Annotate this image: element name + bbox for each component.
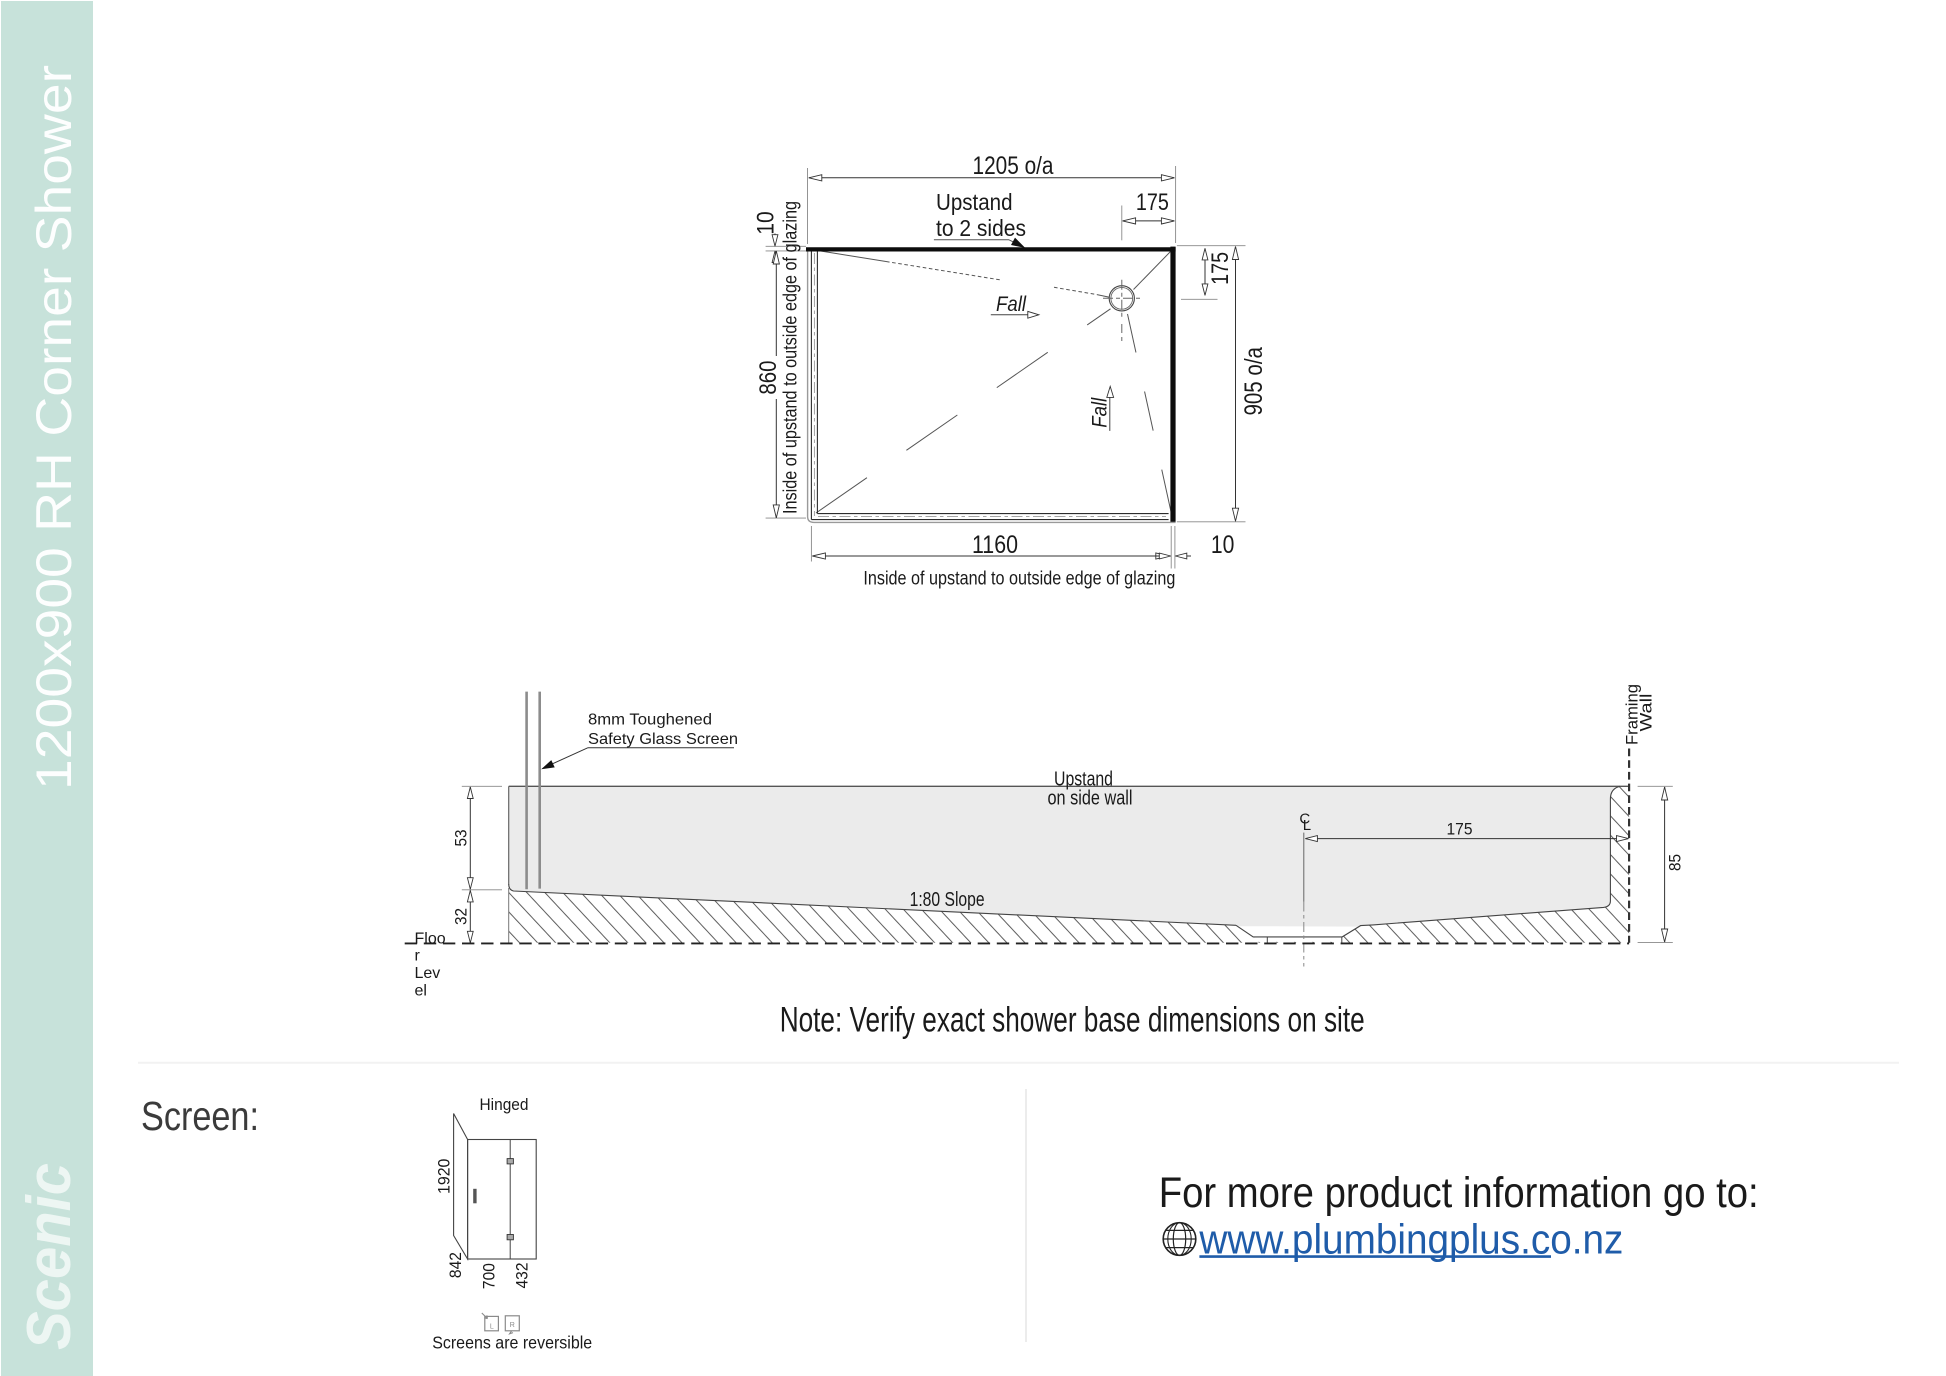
svg-text:Note: Verify exact shower base: Note: Verify exact shower base dimension… [780,1001,1365,1040]
svg-text:Wall: Wall [1638,694,1656,732]
svg-text:to 2 sides: to 2 sides [936,215,1026,241]
svg-text:Screens are reversible: Screens are reversible [432,1333,592,1353]
svg-text:r: r [415,948,421,965]
svg-text:175: 175 [1136,189,1169,216]
svg-text:Fall: Fall [996,293,1027,316]
svg-text:85: 85 [1667,854,1685,871]
svg-text:1:80 Slope: 1:80 Slope [910,889,985,911]
svg-text:Screen:: Screen: [141,1093,259,1139]
svg-text:842: 842 [447,1252,465,1278]
svg-text:Scenic: Scenic [15,1163,84,1350]
svg-text:Fall: Fall [1089,397,1112,428]
svg-text:175: 175 [1207,252,1234,285]
svg-text:905 o/a: 905 o/a [1240,347,1268,416]
svg-text:700: 700 [480,1263,498,1289]
svg-text:el: el [415,983,427,1000]
svg-text:Inside of upstand to outside e: Inside of upstand to outside edge of gla… [863,569,1175,590]
svg-text:32: 32 [453,908,471,925]
svg-text:1200x900 RH Corner Shower: 1200x900 RH Corner Shower [26,65,82,790]
svg-text:1920: 1920 [436,1159,454,1194]
svg-text:10: 10 [753,211,780,235]
svg-text:10: 10 [1211,531,1235,559]
svg-text:Hinged: Hinged [480,1096,529,1114]
svg-text:175: 175 [1447,820,1473,839]
svg-text:Floo: Floo [415,930,446,947]
svg-text:1205 o/a: 1205 o/a [973,152,1054,180]
svg-text:860: 860 [755,361,782,395]
svg-text:For more product information g: For more product information go to: [1159,1169,1759,1217]
svg-text:L: L [1303,817,1311,834]
svg-text:Lev: Lev [415,965,441,982]
svg-text:8mm Toughened: 8mm Toughened [588,711,712,728]
svg-text:Upstand: Upstand [936,189,1013,215]
svg-text:432: 432 [514,1263,532,1289]
svg-text:on side wall: on side wall [1048,787,1133,809]
svg-text:R: R [510,1322,515,1329]
svg-text:53: 53 [453,830,471,847]
svg-text:L: L [490,1324,494,1331]
svg-text:1160: 1160 [972,531,1018,559]
svg-text:Inside of upstand to outside e: Inside of upstand to outside edge of gla… [781,201,802,514]
svg-text:Safety Glass Screen: Safety Glass Screen [588,731,738,748]
